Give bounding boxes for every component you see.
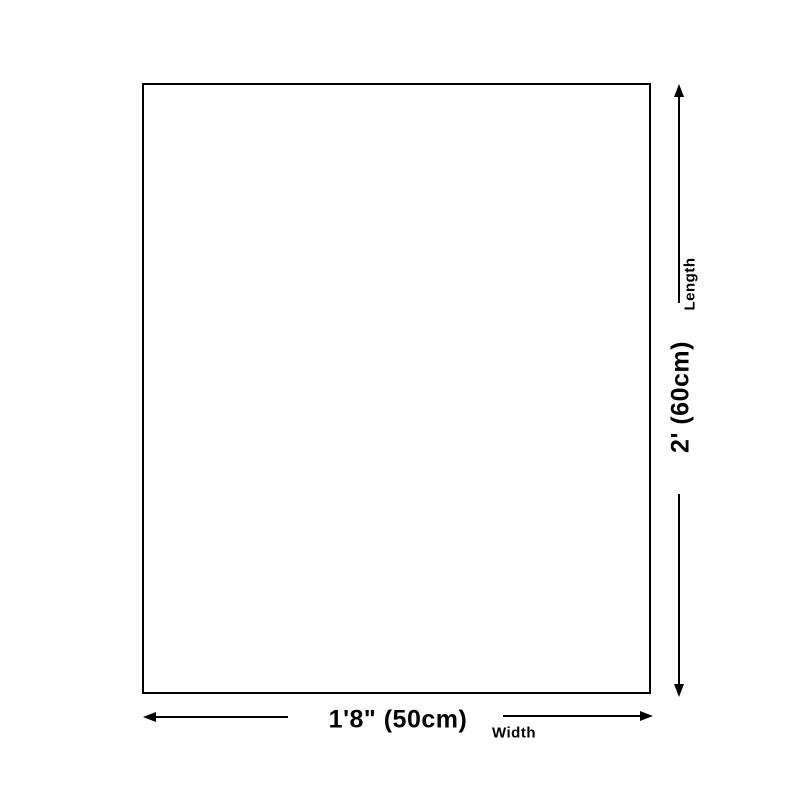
width-dimension-line-left xyxy=(155,716,288,718)
width-value: 1'8" (50cm) xyxy=(329,706,468,735)
length-value: 2' (60cm) xyxy=(667,341,696,453)
arrow-down-icon xyxy=(674,684,684,697)
product-image-placeholder xyxy=(142,83,651,694)
dimension-diagram: Length 2' (60cm) 1'8" (50cm) Width xyxy=(0,0,800,800)
length-dimension-line-upper xyxy=(678,95,680,303)
length-dimension-line-lower xyxy=(678,494,680,685)
width-label: Width xyxy=(492,725,536,742)
length-label: Length xyxy=(682,258,699,311)
arrow-right-icon xyxy=(640,711,653,721)
width-dimension-line-right xyxy=(503,715,640,717)
